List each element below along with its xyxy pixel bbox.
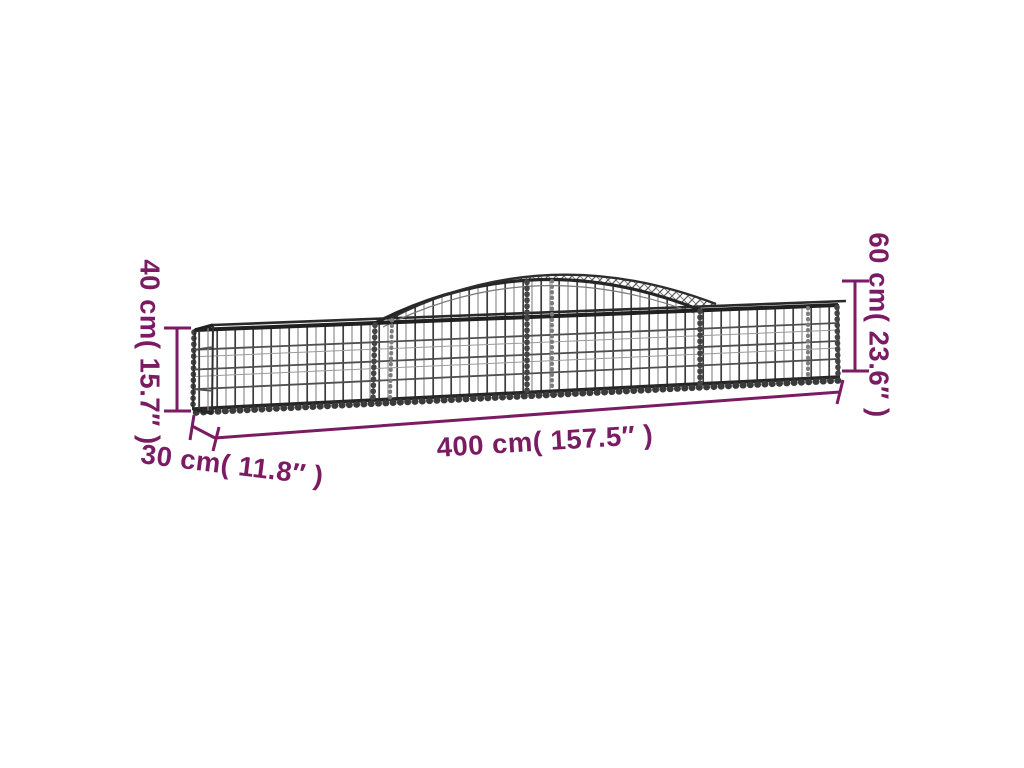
left-end-wire	[194, 369, 213, 370]
label-height-right: 60 cm( 23.6″ )	[864, 232, 895, 417]
dim-tick-left	[190, 415, 194, 440]
dimension-line-height-left	[164, 328, 191, 411]
dim-depth-segment	[192, 426, 215, 438]
product-dimension-image: 40 cm( 15.7″ ) 60 cm( 23.6″ ) 400 cm( 15…	[0, 0, 1024, 768]
seam-divider-1	[373, 325, 375, 400]
gabion-diagram-canvas: 40 cm( 15.7″ ) 60 cm( 23.6″ ) 400 cm( 15…	[0, 0, 1024, 768]
label-depth-bottom-left: 30 cm( 11.8″ )	[139, 438, 325, 491]
seam-right-corner	[837, 307, 838, 375]
gabion-basket-drawing	[193, 275, 846, 413]
label-height-left: 40 cm( 15.7″ )	[135, 259, 166, 444]
front-mesh-panel	[193, 279, 839, 409]
label-length-bottom: 400 cm( 157.5″ )	[436, 419, 654, 463]
left-end-face	[193, 325, 213, 413]
